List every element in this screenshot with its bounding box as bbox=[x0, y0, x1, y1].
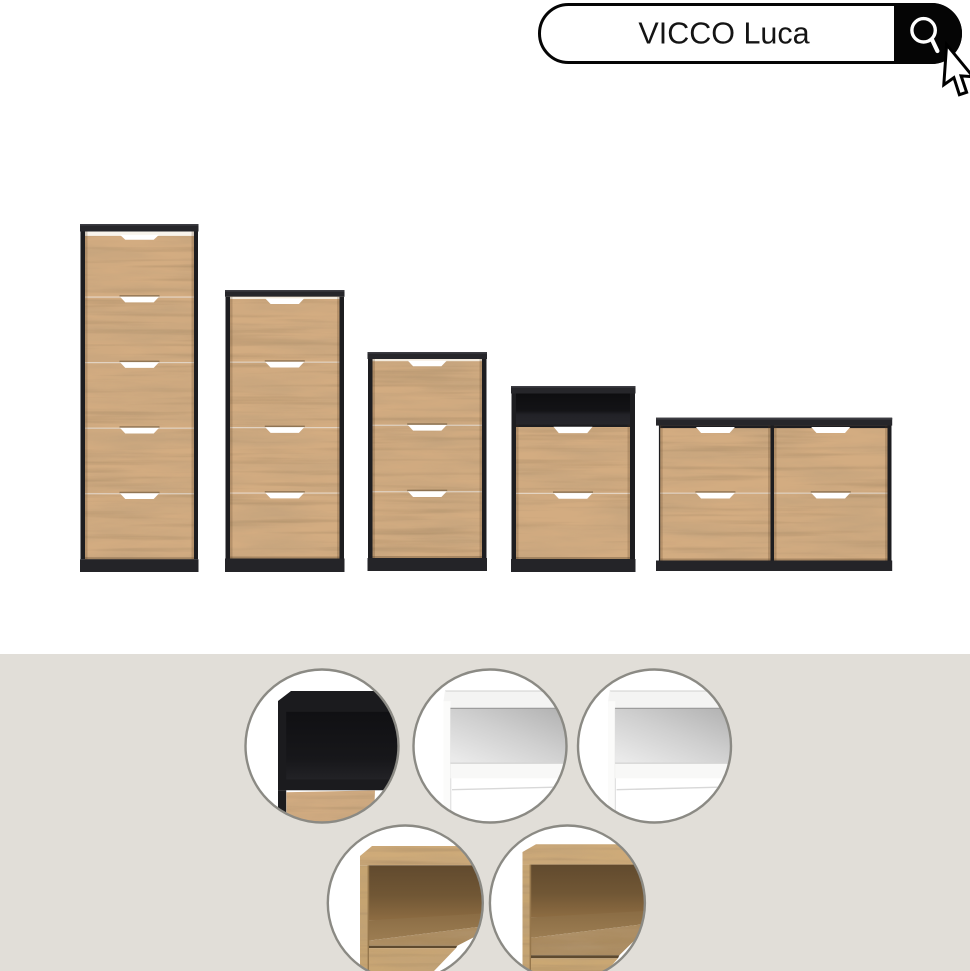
svg-text:VICCO Luca: VICCO Luca bbox=[638, 17, 809, 51]
